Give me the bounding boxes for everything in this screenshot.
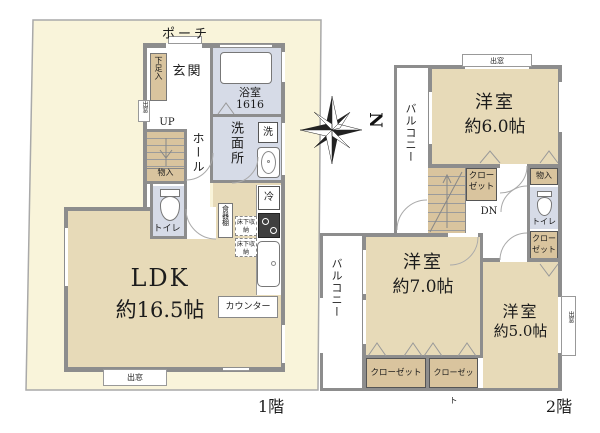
chevron-mark bbox=[540, 264, 558, 276]
chevron-mark bbox=[424, 343, 442, 356]
floor-plan: 出窓 出窓 下足入 洗 冷 カウンター 食器棚 床下収納 床下収納 ポーチ 玄関… bbox=[0, 0, 600, 433]
door-arc bbox=[397, 200, 427, 230]
plan-overlay: N bbox=[0, 0, 600, 433]
door-arc bbox=[450, 237, 478, 265]
stair-arrow-2f bbox=[443, 175, 451, 228]
door-arc bbox=[186, 153, 213, 180]
door-arc bbox=[186, 209, 216, 239]
compass-icon: N bbox=[300, 96, 385, 164]
door-arc bbox=[232, 157, 258, 183]
chevron-mark bbox=[404, 343, 422, 356]
compass-north-label: N bbox=[365, 112, 385, 128]
chevron-mark bbox=[458, 343, 476, 356]
door-arc bbox=[501, 186, 527, 212]
door-arc bbox=[500, 166, 527, 193]
stair-arrow-1f bbox=[160, 138, 172, 166]
chevron-mark bbox=[540, 151, 558, 163]
chevron-mark bbox=[480, 151, 500, 163]
door-arc bbox=[500, 233, 527, 260]
chevron-mark bbox=[218, 103, 234, 114]
stair-diagonal-2f bbox=[430, 172, 462, 232]
chevron-mark bbox=[368, 343, 386, 356]
